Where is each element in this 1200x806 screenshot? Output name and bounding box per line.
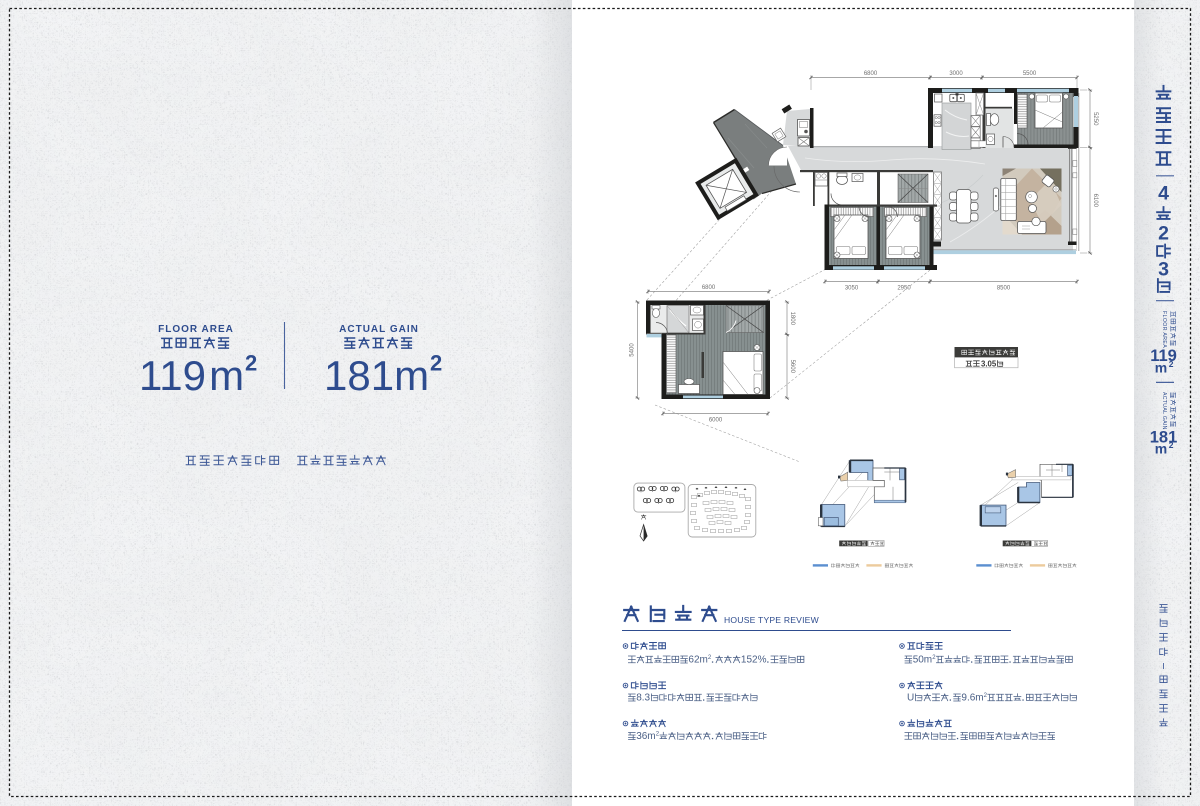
svg-text:152%: 152% (741, 655, 767, 666)
svg-text:4: 4 (1158, 183, 1169, 205)
svg-text:5500: 5500 (1023, 71, 1037, 77)
svg-text:3.05: 3.05 (981, 360, 997, 369)
svg-text:6100: 6100 (1092, 194, 1098, 208)
svg-text:2: 2 (1169, 440, 1174, 450)
svg-text:50m: 50m (913, 655, 932, 666)
svg-text:3050: 3050 (845, 286, 859, 292)
svg-text:3: 3 (1158, 259, 1169, 281)
svg-text:8.3: 8.3 (636, 693, 650, 704)
svg-text:8500: 8500 (997, 286, 1011, 292)
svg-text:ACTUAL GAIN: ACTUAL GAIN (339, 324, 419, 335)
svg-text:HOUSE TYPE REVIEW: HOUSE TYPE REVIEW (724, 615, 820, 625)
svg-text:5400: 5400 (630, 343, 636, 357)
svg-text:181: 181 (324, 352, 394, 399)
svg-text:3000: 3000 (949, 71, 963, 77)
svg-text:FLOOR AREA: FLOOR AREA (1161, 311, 1167, 348)
svg-text:2: 2 (1158, 223, 1169, 245)
svg-text:2: 2 (1169, 359, 1174, 369)
svg-text:ACTUAL GAIN: ACTUAL GAIN (1161, 392, 1167, 430)
svg-text:m: m (209, 352, 244, 399)
svg-text:9.6m: 9.6m (961, 693, 983, 704)
svg-text:FLOOR AREA: FLOOR AREA (158, 324, 234, 335)
svg-text:m: m (1155, 360, 1167, 376)
svg-text:62m: 62m (688, 655, 707, 666)
svg-text:U: U (907, 693, 914, 704)
svg-text:5600: 5600 (789, 360, 795, 374)
svg-text:2: 2 (430, 351, 442, 376)
svg-text:m: m (1155, 441, 1167, 457)
svg-text:36m: 36m (636, 731, 655, 742)
svg-text:6800: 6800 (864, 71, 878, 77)
svg-text:5250: 5250 (1092, 112, 1098, 126)
svg-text:m: m (394, 352, 429, 399)
svg-text:1800: 1800 (789, 312, 795, 326)
svg-text:6000: 6000 (709, 418, 723, 424)
svg-text:6800: 6800 (702, 285, 716, 291)
svg-text:2: 2 (245, 351, 257, 376)
svg-text:119: 119 (139, 352, 206, 399)
